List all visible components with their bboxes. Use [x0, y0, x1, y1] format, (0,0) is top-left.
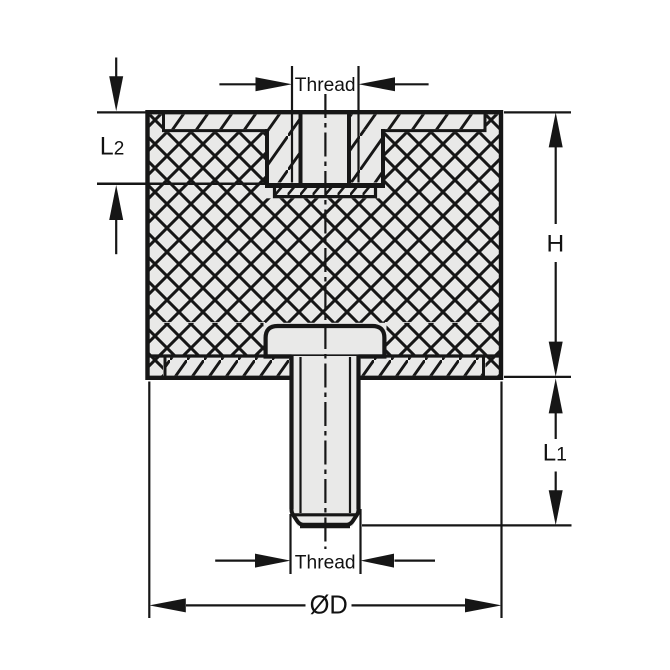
svg-text:H: H: [547, 231, 565, 258]
svg-text:ØD: ØD: [310, 592, 348, 620]
svg-text:L1: L1: [543, 440, 567, 467]
svg-text:Thread: Thread: [295, 75, 356, 96]
svg-text:Thread: Thread: [295, 552, 356, 573]
